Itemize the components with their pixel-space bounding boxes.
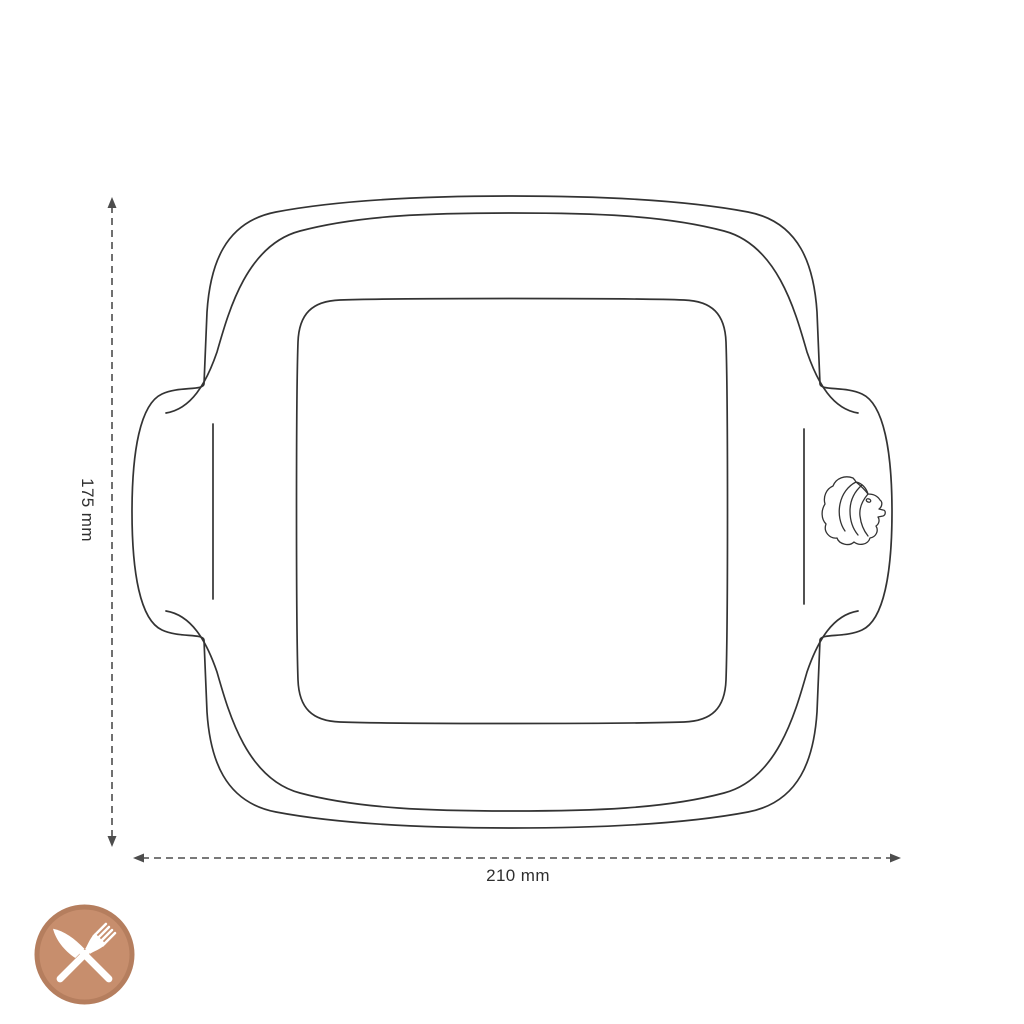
arrow-left-icon [133,854,144,863]
arrow-down-icon [108,836,117,847]
lion-head-outline [822,477,885,545]
lion-eye [866,498,871,503]
arrow-right-icon [890,854,901,863]
width-dimension-label: 210 mm [486,866,550,886]
dish-cavity-outline [297,299,728,724]
product-dimension-diagram: 175 mm 210 mm [0,0,1024,1024]
dimension-arrowheads [108,197,902,863]
dimension-line-strokes [112,206,892,858]
dish-outline [132,196,892,828]
lion-head-icon [822,477,885,545]
dimension-lines [108,197,902,863]
arrow-up-icon [108,197,117,208]
dish-inner-rim-bottom [166,611,858,811]
cutlery-badge-icon [34,904,135,1005]
dish-inner-rim-top [166,213,858,413]
lion-mane-strand-1 [839,482,856,531]
dish-outer-outline [132,196,892,828]
height-dimension-label: 175 mm [77,478,97,542]
